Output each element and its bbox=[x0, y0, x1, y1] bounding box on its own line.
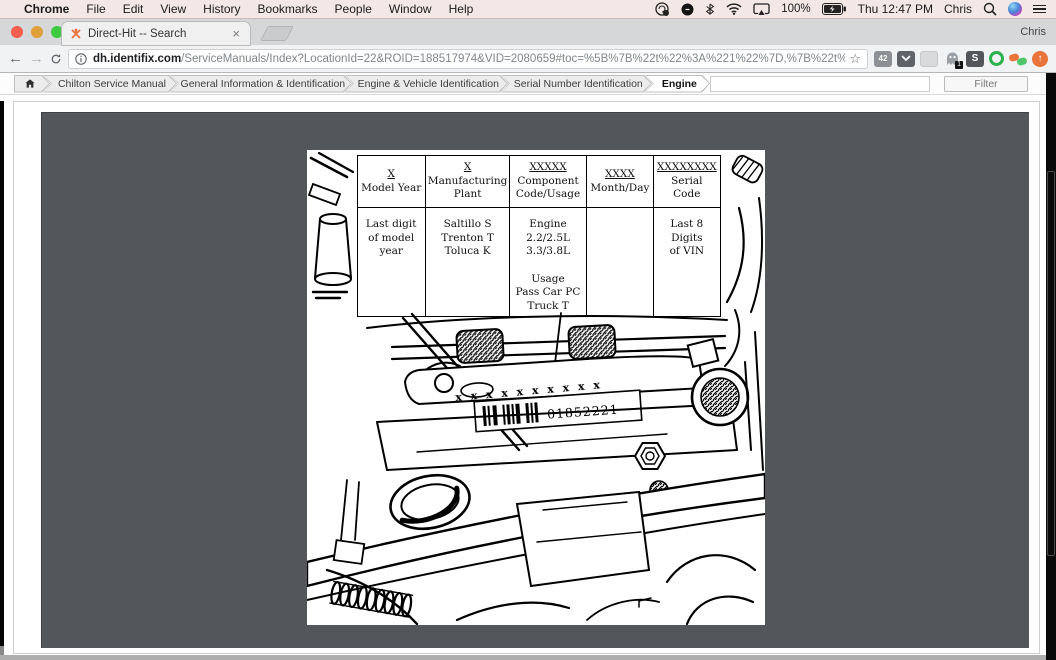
ghostery-icon[interactable]: 1 bbox=[943, 51, 961, 67]
menu-file[interactable]: File bbox=[86, 2, 105, 16]
ext-42-icon[interactable]: 42 bbox=[874, 51, 892, 67]
menu-bookmarks[interactable]: Bookmarks bbox=[258, 2, 318, 16]
menubar-status-area: 100% Thu 12:47 PM Chris bbox=[654, 1, 1046, 17]
battery-percent: 100% bbox=[781, 3, 810, 15]
chrome-profile-name[interactable]: Chris bbox=[1020, 26, 1046, 38]
breadcrumb-engine[interactable]: Engine bbox=[645, 75, 710, 93]
menu-people[interactable]: People bbox=[335, 2, 372, 16]
tab-close-icon[interactable]: × bbox=[230, 27, 242, 40]
breadcrumb-serial-number[interactable]: Serial Number Identification bbox=[501, 75, 652, 93]
menu-history[interactable]: History bbox=[203, 2, 240, 16]
omnibox[interactable]: dh.identifix.com/ServiceManuals/Index?Lo… bbox=[68, 49, 868, 69]
close-window-button[interactable] bbox=[11, 26, 23, 38]
window-controls bbox=[11, 26, 63, 38]
menu-window[interactable]: Window bbox=[389, 2, 432, 16]
black-circle-icon[interactable] bbox=[681, 3, 694, 16]
tab-title: Direct-Hit -- Search bbox=[88, 28, 230, 40]
duo-dots-ext-icon[interactable] bbox=[1009, 53, 1027, 65]
scrollbar-thumb[interactable] bbox=[1047, 171, 1055, 556]
header-serial-code: XXXXXXXXSerial Code bbox=[654, 156, 720, 208]
swirl-icon[interactable] bbox=[654, 1, 670, 17]
viewer-gray-panel: 01852221 x x x x x x x x x x bbox=[41, 112, 1029, 648]
left-black-edge bbox=[0, 101, 4, 646]
cell-manufacturing-plant: Saltillo S Trenton T Toluca K bbox=[425, 208, 509, 317]
menubar-clock[interactable]: Thu 12:47 PM bbox=[858, 2, 933, 16]
url-path: /ServiceManuals/Index?LocationId=22&ROID… bbox=[181, 53, 845, 65]
manual-viewer-frame: 01852221 x x x x x x x x x x bbox=[13, 101, 1040, 654]
orange-up-ext-icon[interactable]: ↑ bbox=[1032, 51, 1048, 67]
bookmark-star-icon[interactable]: ☆ bbox=[849, 51, 861, 67]
menu-edit[interactable]: Edit bbox=[123, 2, 144, 16]
breadcrumb-general-info[interactable]: General Information & Identification bbox=[170, 75, 352, 93]
spotlight-search-icon[interactable] bbox=[983, 2, 997, 16]
page-scrollbar[interactable] bbox=[1046, 73, 1056, 660]
forward-button[interactable]: → bbox=[29, 50, 44, 67]
breadcrumb-bar: Chilton Service Manual General Informati… bbox=[0, 73, 1056, 95]
airplay-display-icon[interactable] bbox=[753, 3, 770, 16]
menubar-user[interactable]: Chris bbox=[944, 2, 972, 16]
extension-icons-row: 42 1 S ↑ bbox=[874, 51, 1048, 67]
menu-help[interactable]: Help bbox=[449, 2, 474, 16]
reload-button[interactable] bbox=[50, 51, 62, 67]
ghostery-badge: 1 bbox=[955, 61, 963, 69]
menu-chrome[interactable]: Chrome bbox=[24, 2, 69, 16]
back-button[interactable]: ← bbox=[8, 50, 23, 67]
page-content: 01852221 x x x x x x x x x x bbox=[0, 95, 1056, 660]
identifix-favicon bbox=[70, 28, 82, 40]
page-info-icon[interactable] bbox=[75, 53, 87, 65]
blank-ext-icon[interactable] bbox=[920, 51, 938, 67]
wifi-icon[interactable] bbox=[726, 3, 742, 15]
breadcrumb-chilton[interactable]: Chilton Service Manual bbox=[43, 75, 177, 93]
cell-month-day bbox=[586, 208, 653, 317]
header-model-year: XModel Year bbox=[357, 156, 425, 208]
browser-toolbar: ← → dh.identifix.com/ServiceManuals/Inde… bbox=[0, 45, 1056, 73]
url-domain: dh.identifix.com bbox=[93, 53, 181, 65]
bluetooth-icon[interactable] bbox=[705, 2, 715, 16]
cell-model-year: Last digit of model year bbox=[357, 208, 425, 317]
home-icon bbox=[25, 78, 35, 89]
browser-tab[interactable]: Direct-Hit -- Search × bbox=[62, 22, 250, 45]
s-ext-icon[interactable]: S bbox=[966, 51, 984, 67]
filter-input[interactable] bbox=[710, 76, 930, 92]
table-body-row: Last digit of model year Saltillo S Tren… bbox=[357, 208, 720, 317]
header-month-day: XXXXMonth/Day bbox=[586, 156, 653, 208]
filter-button[interactable]: Filter bbox=[944, 76, 1028, 92]
siri-icon[interactable] bbox=[1008, 2, 1022, 16]
cell-serial-code: Last 8 Digits of VIN bbox=[654, 208, 720, 317]
vin-code-table: XModel Year XManufacturing Plant XXXXXCo… bbox=[357, 155, 721, 317]
header-manufacturing-plant: XManufacturing Plant bbox=[425, 156, 509, 208]
breadcrumb-engine-vehicle[interactable]: Engine & Vehicle Identification bbox=[345, 75, 508, 93]
notification-center-icon[interactable] bbox=[1033, 5, 1046, 14]
bottom-gray-strip bbox=[0, 655, 1056, 660]
table-header-row: XModel Year XManufacturing Plant XXXXXCo… bbox=[357, 156, 720, 208]
green-ring-ext-icon[interactable] bbox=[989, 51, 1004, 66]
new-tab-button[interactable] bbox=[260, 26, 294, 41]
minimize-window-button[interactable] bbox=[31, 26, 43, 38]
chrome-tab-strip: Direct-Hit -- Search × Chris bbox=[0, 19, 1056, 45]
cell-component-code: Engine 2.2/2.5L 3.3/3.8L Usage Pass Car … bbox=[510, 208, 586, 317]
engine-id-figure: 01852221 x x x x x x x x x x bbox=[307, 150, 765, 625]
pocket-chevron-icon[interactable] bbox=[897, 51, 915, 67]
battery-icon bbox=[822, 3, 847, 15]
menu-view[interactable]: View bbox=[160, 2, 186, 16]
header-component-code: XXXXXComponent Code/Usage bbox=[510, 156, 586, 208]
macos-menu-bar: Chrome File Edit View History Bookmarks … bbox=[0, 0, 1056, 19]
filter-area: Filter bbox=[710, 76, 1042, 92]
